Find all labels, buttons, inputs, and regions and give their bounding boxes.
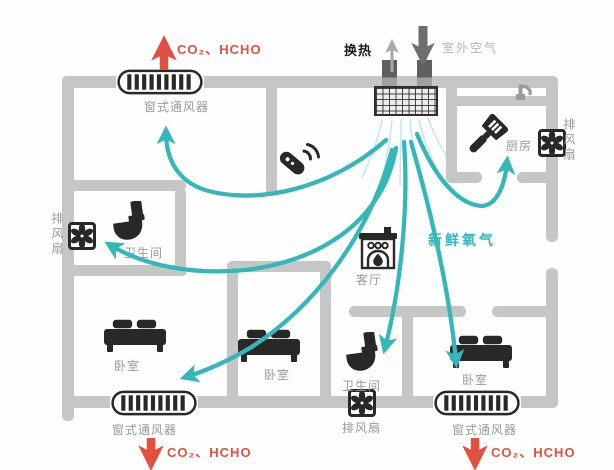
wall-outer-right-lower xyxy=(546,268,558,408)
wall-bathroom1-right xyxy=(175,188,186,274)
fresh-oxygen-label: 新鲜氧气 xyxy=(428,230,496,250)
window-ventilator-label-top: 窗式通风器 xyxy=(144,98,209,115)
wall-kitchen-counter xyxy=(452,96,553,106)
kitchen-label: 厨房 xyxy=(506,137,532,154)
wall-bedroom3-top xyxy=(492,306,552,317)
outdoor-air-label: 室外空气 xyxy=(442,39,498,56)
window-ventilator-icon-top xyxy=(116,69,204,95)
wall-bedroom2-top xyxy=(227,261,331,272)
fireplace-icon xyxy=(356,226,400,270)
wall-bathroom1-top xyxy=(66,180,186,191)
wall-bathroom1-bottom xyxy=(66,265,187,276)
window-ventilator-icon-bottom-right xyxy=(433,390,521,416)
bathroom-label-bottom-center: 卫生间 xyxy=(342,377,381,394)
toilet-icon-top-left xyxy=(110,201,148,243)
exhaust-fan-label-bottom: 排风扇 xyxy=(342,419,381,436)
bedroom-label-bottom-left: 卧室 xyxy=(114,357,140,374)
spatula-icon xyxy=(462,112,510,160)
remote-control-icon xyxy=(276,136,322,180)
bedroom-label-right: 卧室 xyxy=(462,371,488,388)
wall-kitchen-bottom-right xyxy=(517,172,552,183)
living-room-label: 客厅 xyxy=(356,271,382,288)
toilet-icon-bottom-center xyxy=(343,332,381,374)
wall-bathroom2-right xyxy=(402,306,413,401)
exhaust-fan-label-left: 排风扇 xyxy=(50,212,63,257)
heat-exchange-label: 换热 xyxy=(344,40,372,59)
exhaust-fan-label-right: 排风扇 xyxy=(562,118,575,163)
heat-exchanger-unit-icon xyxy=(374,86,438,116)
exhaust-gases-label-bottom-left: CO₂、HCHO xyxy=(167,442,252,461)
bed-icon-right xyxy=(450,334,512,370)
window-ventilator-label-bottom-left: 窗式通风器 xyxy=(112,421,177,438)
exhaust-fan-icon-left xyxy=(68,222,96,250)
exhaust-gases-label-bottom-right: CO₂、HCHO xyxy=(491,442,576,461)
wall-kitchen-bottom-left xyxy=(446,172,482,183)
bed-icon-bottom-left xyxy=(104,318,166,354)
exhaust-gases-label-top: CO₂、HCHO xyxy=(177,39,262,58)
faucet-icon xyxy=(508,78,536,100)
bed-icon-center xyxy=(238,328,300,364)
wall-bedroom2-left xyxy=(227,261,238,401)
bathroom-label-top-left: 卫生间 xyxy=(124,244,163,261)
supply-mist xyxy=(362,118,452,186)
wall-bedroom2-right xyxy=(320,261,331,401)
bedroom-label-center: 卧室 xyxy=(264,366,290,383)
window-ventilator-icon-bottom-left xyxy=(110,390,198,416)
window-ventilator-label-bottom-right: 窗式通风器 xyxy=(452,421,517,438)
ventilation-floorplan-diagram: CO₂、HCHO 换热 室外空气 窗式通风器 厨房 排风扇 排风扇 卫生间 新鲜… xyxy=(0,0,614,470)
